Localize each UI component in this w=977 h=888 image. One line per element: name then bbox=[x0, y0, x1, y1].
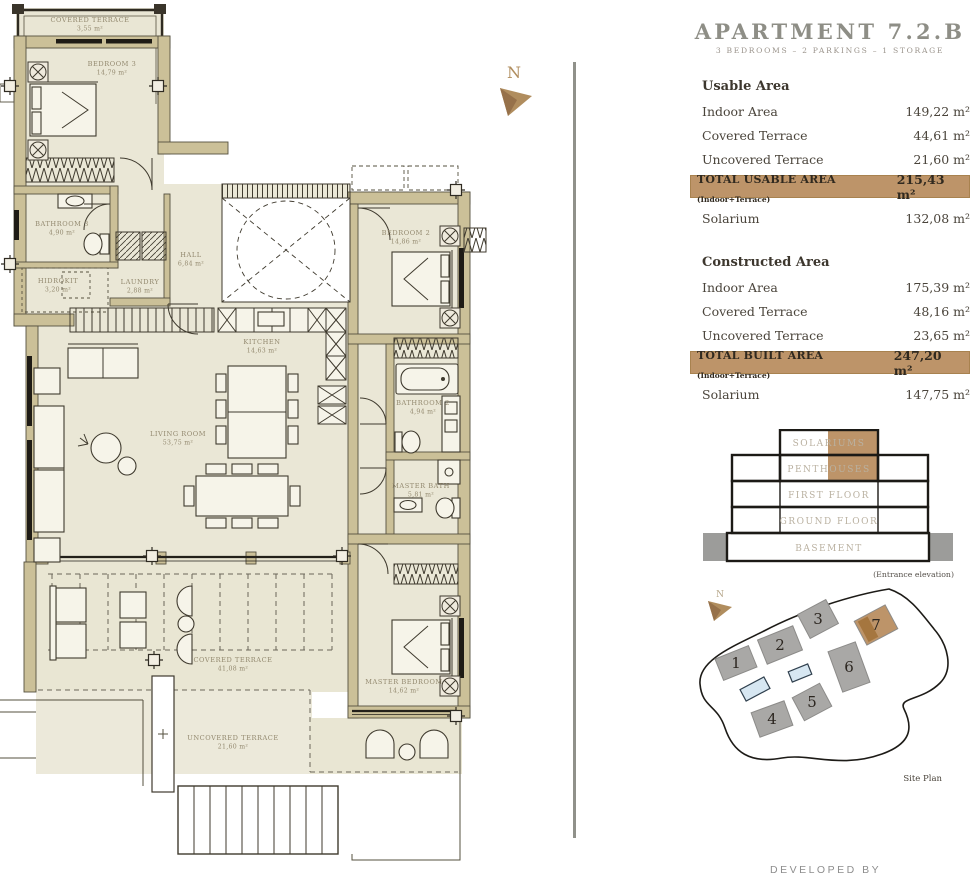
total-usable-area-row: TOTAL USABLE AREA (Indoor+Terrace) 215,4… bbox=[690, 175, 970, 198]
developed-by-text: DEVELOPED BY bbox=[770, 864, 881, 876]
building-elevation-diagram: SOLARIUMS PENTHOUSES FIRST FLOOR GROUND … bbox=[702, 429, 954, 579]
elevation-floor-solariums: SOLARIUMS bbox=[793, 439, 866, 449]
site-buildings: 1237654 bbox=[715, 600, 898, 738]
row-label: Indoor Area bbox=[702, 276, 778, 300]
site-building-4: 4 bbox=[751, 701, 793, 737]
svg-text:2: 2 bbox=[775, 636, 785, 654]
usable-covered-row: Covered Terrace 44,61 m² bbox=[690, 124, 970, 148]
info-panel: APARTMENT 7.2.B 3 BEDROOMS – 2 PARKINGS … bbox=[690, 20, 970, 795]
constructed-solarium-row: Solarium 147,75 m² bbox=[690, 383, 970, 407]
row-label: Indoor Area bbox=[702, 100, 778, 124]
constructed-area-heading: Constructed Area bbox=[702, 255, 970, 270]
row-value: 175,39 m² bbox=[905, 276, 970, 300]
usable-area-heading: Usable Area bbox=[702, 79, 970, 94]
svg-text:N: N bbox=[716, 590, 724, 600]
usable-indoor-row: Indoor Area 149,22 m² bbox=[690, 100, 970, 124]
total-value: 247,20 m² bbox=[894, 348, 962, 378]
total-label: TOTAL USABLE AREA bbox=[697, 173, 836, 186]
bedroom-2-bed bbox=[392, 250, 452, 308]
constructed-indoor-row: Indoor Area 175,39 m² bbox=[690, 276, 970, 300]
site-plan-label: Site Plan bbox=[903, 774, 942, 784]
row-value: 21,60 m² bbox=[913, 148, 970, 172]
constructed-covered-row: Covered Terrace 48,16 m² bbox=[690, 300, 970, 324]
total-note: (Indoor+Terrace) bbox=[697, 195, 770, 204]
row-label: Covered Terrace bbox=[702, 300, 807, 324]
site-building-3: 3 bbox=[798, 600, 839, 639]
site-building-1: 1 bbox=[715, 646, 757, 681]
total-note: (Indoor+Terrace) bbox=[697, 371, 770, 380]
page-subtitle: 3 BEDROOMS – 2 PARKINGS – 1 STORAGE bbox=[690, 46, 970, 55]
site-building-5: 5 bbox=[792, 683, 832, 721]
row-label: Solarium bbox=[702, 383, 759, 407]
site-pool bbox=[788, 664, 812, 682]
svg-text:5: 5 bbox=[807, 693, 817, 711]
site-building-7: 7 bbox=[854, 605, 898, 645]
site-north-arrow: N bbox=[708, 590, 732, 621]
elevation-floor-penthouses: PENTHOUSES bbox=[787, 465, 870, 475]
elevation-floor-first-floor: FIRST FLOOR bbox=[788, 491, 870, 501]
svg-text:7: 7 bbox=[871, 616, 881, 634]
site-plan: N 1237654 Site Plan bbox=[684, 583, 974, 791]
elevation-floor-basement: BASEMENT bbox=[795, 544, 863, 554]
svg-text:3: 3 bbox=[813, 610, 823, 628]
row-label: Covered Terrace bbox=[702, 124, 807, 148]
total-built-area-row: TOTAL BUILT AREA (Indoor+Terrace) 247,20… bbox=[690, 351, 970, 374]
svg-text:1: 1 bbox=[731, 654, 741, 672]
row-value: 132,08 m² bbox=[905, 207, 970, 231]
row-value: 23,65 m² bbox=[913, 324, 970, 348]
elevation-floor-ground-floor: GROUND FLOOR bbox=[780, 517, 879, 527]
bedroom-3-bed bbox=[28, 82, 98, 136]
north-arrow: N bbox=[500, 63, 532, 116]
svg-text:4: 4 bbox=[767, 710, 777, 728]
total-value: 215,43 m² bbox=[897, 172, 962, 202]
total-label: TOTAL BUILT AREA bbox=[697, 349, 823, 362]
row-value: 44,61 m² bbox=[913, 124, 970, 148]
vertical-divider bbox=[573, 62, 576, 838]
page-title: APARTMENT 7.2.B bbox=[690, 20, 970, 43]
row-value: 149,22 m² bbox=[905, 100, 970, 124]
site-pool bbox=[740, 677, 770, 701]
row-value: 147,75 m² bbox=[905, 383, 970, 407]
row-value: 48,16 m² bbox=[913, 300, 970, 324]
site-building-6: 6 bbox=[828, 642, 870, 692]
floor-plan-drawing: N COVERED TERRACE3,55 m²BEDROOM 314,79 m… bbox=[0, 0, 575, 888]
lightwell-void bbox=[222, 184, 350, 302]
awnings bbox=[352, 166, 458, 190]
svg-text:6: 6 bbox=[844, 658, 854, 676]
svg-text:N: N bbox=[507, 63, 521, 82]
usable-solarium-row: Solarium 132,08 m² bbox=[690, 207, 970, 231]
master-bedroom-bed bbox=[392, 618, 452, 676]
row-label: Solarium bbox=[702, 207, 759, 231]
entrance-elevation-caption: (Entrance elevation) bbox=[702, 570, 954, 579]
